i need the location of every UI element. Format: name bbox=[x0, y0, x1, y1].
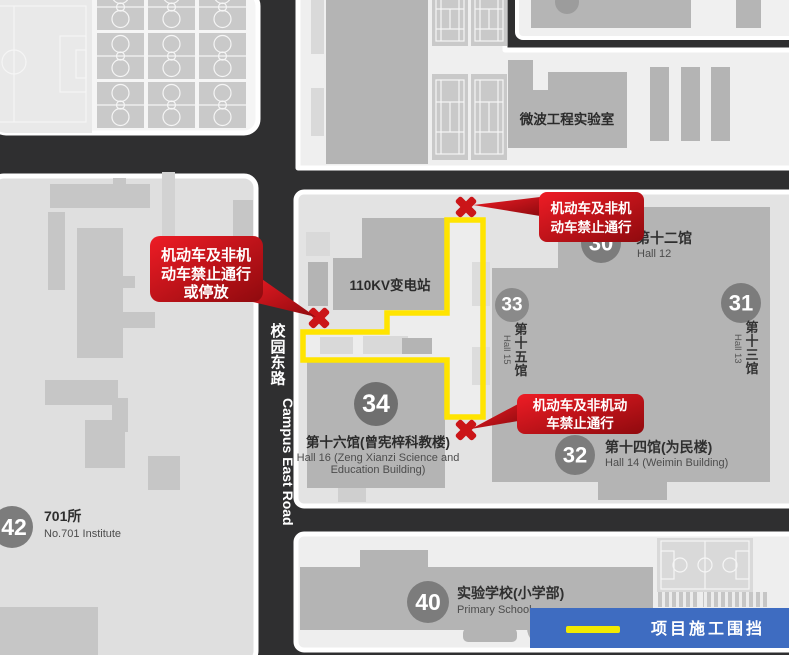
institute-701-label-en: No.701 Institute bbox=[44, 528, 121, 540]
building bbox=[650, 67, 669, 141]
microwave-lab-label: 微波工程实验室 bbox=[519, 111, 615, 127]
basketball-courts-grid bbox=[97, 0, 246, 128]
warning-text: 机动车及非机 bbox=[551, 200, 632, 216]
map-legend: 项目施工围挡 bbox=[530, 608, 789, 648]
small-lot bbox=[306, 232, 330, 256]
school-label-en: Primary School bbox=[457, 604, 532, 616]
parking-spot bbox=[320, 337, 353, 354]
school-building-annex bbox=[463, 628, 517, 642]
warning-text: 动车禁止通行 bbox=[551, 219, 632, 235]
hall-40-number: 40 bbox=[415, 589, 441, 615]
hall-14-label-cn: 第十四馆(为民楼) bbox=[605, 439, 712, 455]
substation-label: 110KV变电站 bbox=[349, 277, 431, 293]
hall-16-label-en2: Education Building) bbox=[331, 464, 426, 476]
warning-text: 机动车及非机 bbox=[161, 246, 251, 264]
school-label-cn: 实验学校(小学部) bbox=[457, 585, 564, 601]
hall-16-label-cn: 第十六馆(曾宪梓科教楼) bbox=[306, 434, 450, 450]
hall-16-annex bbox=[338, 488, 366, 502]
warning-text: 车禁止通行 bbox=[546, 415, 614, 431]
hall-15-label-cn: 第十五馆 bbox=[514, 322, 527, 378]
warning-text: 或停放 bbox=[183, 283, 229, 301]
microwave-lab-building bbox=[508, 60, 627, 148]
hall-15-label-en: Hall 15 bbox=[501, 335, 512, 365]
map-canvas: 微波工程实验室 42 701所 No.701 Institute 校园东路 bbox=[0, 0, 789, 655]
hall-12-label-cn: 第十二馆 bbox=[636, 230, 692, 246]
parking-spot bbox=[363, 336, 408, 354]
hall-34-number: 34 bbox=[362, 390, 390, 418]
building bbox=[681, 67, 700, 141]
hall-12-label-en: Hall 12 bbox=[637, 248, 671, 260]
road-label-cn: 校园东路 bbox=[270, 322, 286, 387]
fence-line-sample bbox=[566, 626, 620, 633]
sports-block bbox=[0, 0, 258, 133]
hall-16-label-en1: Hall 16 (Zeng Xianzi Science and bbox=[297, 452, 460, 464]
warning-text: 机动车及非机动 bbox=[533, 397, 628, 413]
building bbox=[311, 0, 324, 54]
hall-13-label-cn: 第十三馆 bbox=[745, 320, 758, 376]
hall-13-label-en: Hall 13 bbox=[732, 334, 743, 364]
hall-14-label-en: Hall 14 (Weimin Building) bbox=[605, 457, 728, 469]
hall-32-number: 32 bbox=[563, 443, 587, 468]
hall-42-number: 42 bbox=[1, 514, 27, 540]
hall-31-number: 31 bbox=[729, 291, 753, 316]
campus-construction-map: 微波工程实验室 42 701所 No.701 Institute 校园东路 bbox=[0, 0, 789, 655]
small-building bbox=[402, 338, 432, 354]
building bbox=[531, 0, 691, 28]
top-right-block bbox=[517, 0, 789, 38]
building bbox=[311, 88, 324, 136]
hall-33-number: 33 bbox=[501, 295, 522, 316]
institute-701-label-cn: 701所 bbox=[44, 508, 81, 524]
school-basketball-court bbox=[657, 538, 767, 607]
warning-text: 动车禁止通行 bbox=[161, 265, 251, 283]
large-building bbox=[326, 0, 428, 164]
small-building bbox=[308, 262, 328, 306]
building bbox=[711, 67, 730, 141]
building bbox=[736, 0, 761, 28]
legend-label: 项目施工围挡 bbox=[651, 619, 765, 638]
